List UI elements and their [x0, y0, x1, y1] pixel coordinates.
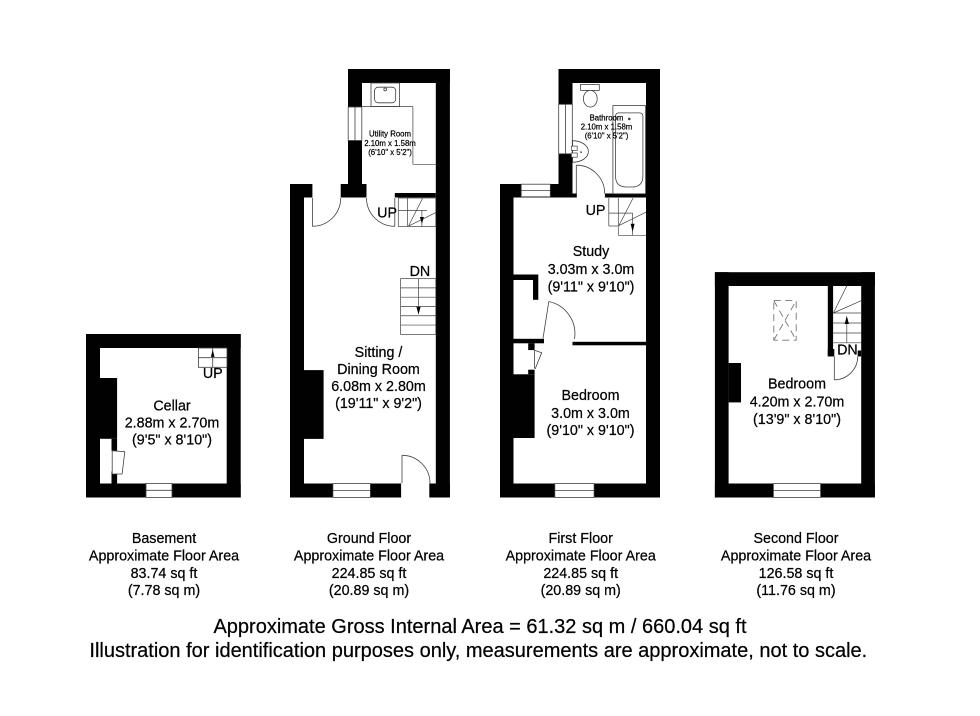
svg-text:2.88m x 2.70m: 2.88m x 2.70m: [125, 416, 220, 432]
svg-text:Dining Room: Dining Room: [337, 362, 420, 378]
svg-text:(6'10" x 5'2"): (6'10" x 5'2"): [585, 132, 629, 141]
svg-text:224.85 sq ft: 224.85 sq ft: [332, 566, 407, 582]
svg-text:4.20m x 2.70m: 4.20m x 2.70m: [750, 395, 845, 411]
svg-text:126.58 sq ft: 126.58 sq ft: [759, 566, 834, 582]
svg-text:Second Floor: Second Floor: [753, 531, 838, 547]
svg-text:Utility Room: Utility Room: [369, 129, 411, 138]
svg-text:UP: UP: [203, 366, 223, 382]
svg-text:Approximate Floor Area: Approximate Floor Area: [506, 549, 656, 565]
svg-text:83.74 sq ft: 83.74 sq ft: [131, 566, 198, 582]
svg-text:(19'11" x 9'2"): (19'11" x 9'2"): [335, 396, 422, 412]
svg-text:Study: Study: [573, 244, 610, 260]
svg-text:(20.89 sq m): (20.89 sq m): [329, 583, 409, 599]
svg-text:Bedroom: Bedroom: [768, 376, 826, 392]
svg-text:(6'10" x 5'2"): (6'10" x 5'2"): [368, 148, 412, 157]
svg-text:Approximate Floor Area: Approximate Floor Area: [89, 549, 239, 565]
svg-text:Approximate Gross Internal Are: Approximate Gross Internal Area = 61.32 …: [213, 616, 747, 638]
svg-text:(9'5" x 8'10"): (9'5" x 8'10"): [132, 432, 212, 448]
svg-text:2.10m x 1.58m: 2.10m x 1.58m: [581, 123, 633, 132]
svg-text:UP: UP: [377, 205, 397, 221]
svg-text:First Floor: First Floor: [549, 531, 614, 547]
svg-text:3.0m x 3.0m: 3.0m x 3.0m: [551, 406, 630, 422]
svg-text:Bathroom: Bathroom: [590, 113, 624, 122]
svg-text:Ground Floor: Ground Floor: [327, 531, 411, 547]
svg-text:3.03m x 3.0m: 3.03m x 3.0m: [548, 262, 635, 278]
svg-text:Approximate Floor Area: Approximate Floor Area: [721, 549, 871, 565]
svg-text:Sitting /: Sitting /: [355, 345, 403, 361]
svg-text:Bedroom: Bedroom: [561, 388, 619, 404]
svg-text:Cellar: Cellar: [153, 398, 191, 414]
svg-text:(7.78 sq m): (7.78 sq m): [128, 583, 200, 599]
svg-text:DN: DN: [837, 342, 858, 358]
svg-text:(11.76 sq m): (11.76 sq m): [756, 583, 835, 599]
svg-text:Approximate Floor Area: Approximate Floor Area: [294, 549, 444, 565]
svg-text:UP: UP: [586, 203, 606, 219]
svg-text:2.10m x 1.58m: 2.10m x 1.58m: [364, 139, 416, 148]
svg-text:(20.89 sq m): (20.89 sq m): [541, 583, 621, 599]
svg-text:(9'10" x 9'10"): (9'10" x 9'10"): [547, 423, 635, 439]
svg-text:6.08m x 2.80m: 6.08m x 2.80m: [331, 379, 426, 395]
svg-text:Basement: Basement: [132, 531, 196, 547]
svg-text:224.85 sq ft: 224.85 sq ft: [543, 566, 618, 582]
svg-text:DN: DN: [410, 264, 431, 280]
svg-text:(13'9" x 8'10"): (13'9" x 8'10"): [753, 412, 841, 428]
svg-text:Illustration for identificatio: Illustration for identification purposes…: [89, 640, 867, 662]
svg-text:(9'11" x 9'10"): (9'11" x 9'10"): [548, 280, 635, 296]
